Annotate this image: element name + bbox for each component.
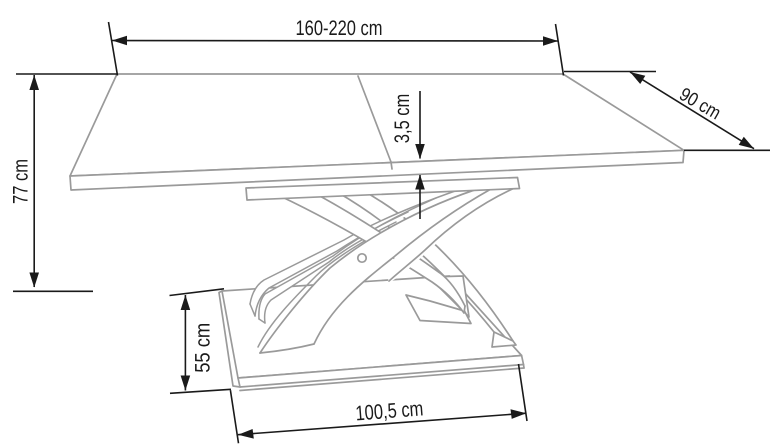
svg-text:55 cm: 55 cm xyxy=(191,323,214,373)
svg-text:77 cm: 77 cm xyxy=(10,159,33,204)
svg-text:3,5 cm: 3,5 cm xyxy=(391,94,414,144)
svg-text:160-220 cm: 160-220 cm xyxy=(296,17,383,40)
